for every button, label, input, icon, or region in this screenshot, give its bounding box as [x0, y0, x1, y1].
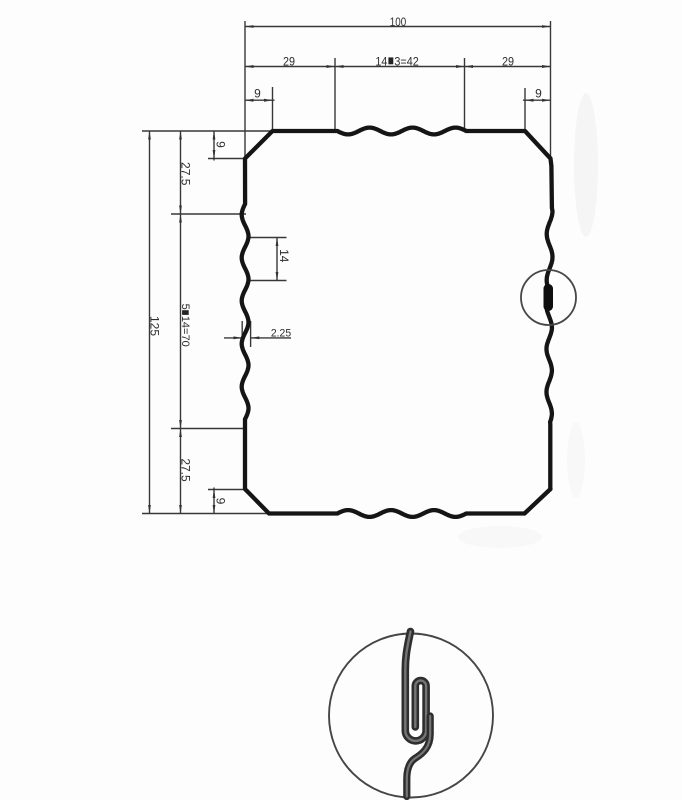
svg-text:14=70: 14=70 [179, 316, 191, 347]
svg-text:29: 29 [502, 56, 514, 69]
svg-text:5: 5 [179, 304, 191, 310]
svg-text:9: 9 [254, 87, 261, 101]
svg-text:27.5: 27.5 [179, 458, 193, 482]
svg-text:2.25: 2.25 [271, 327, 291, 339]
svg-text:14: 14 [375, 56, 388, 69]
svg-text:125: 125 [148, 316, 162, 336]
svg-text:9: 9 [214, 141, 228, 148]
svg-text:3=42: 3=42 [394, 56, 418, 69]
svg-text:29: 29 [283, 56, 295, 69]
svg-text:9: 9 [214, 498, 228, 505]
svg-text:14: 14 [277, 249, 291, 263]
svg-text:9: 9 [535, 87, 542, 101]
svg-text:27.5: 27.5 [179, 162, 193, 186]
svg-text:100: 100 [390, 16, 406, 29]
